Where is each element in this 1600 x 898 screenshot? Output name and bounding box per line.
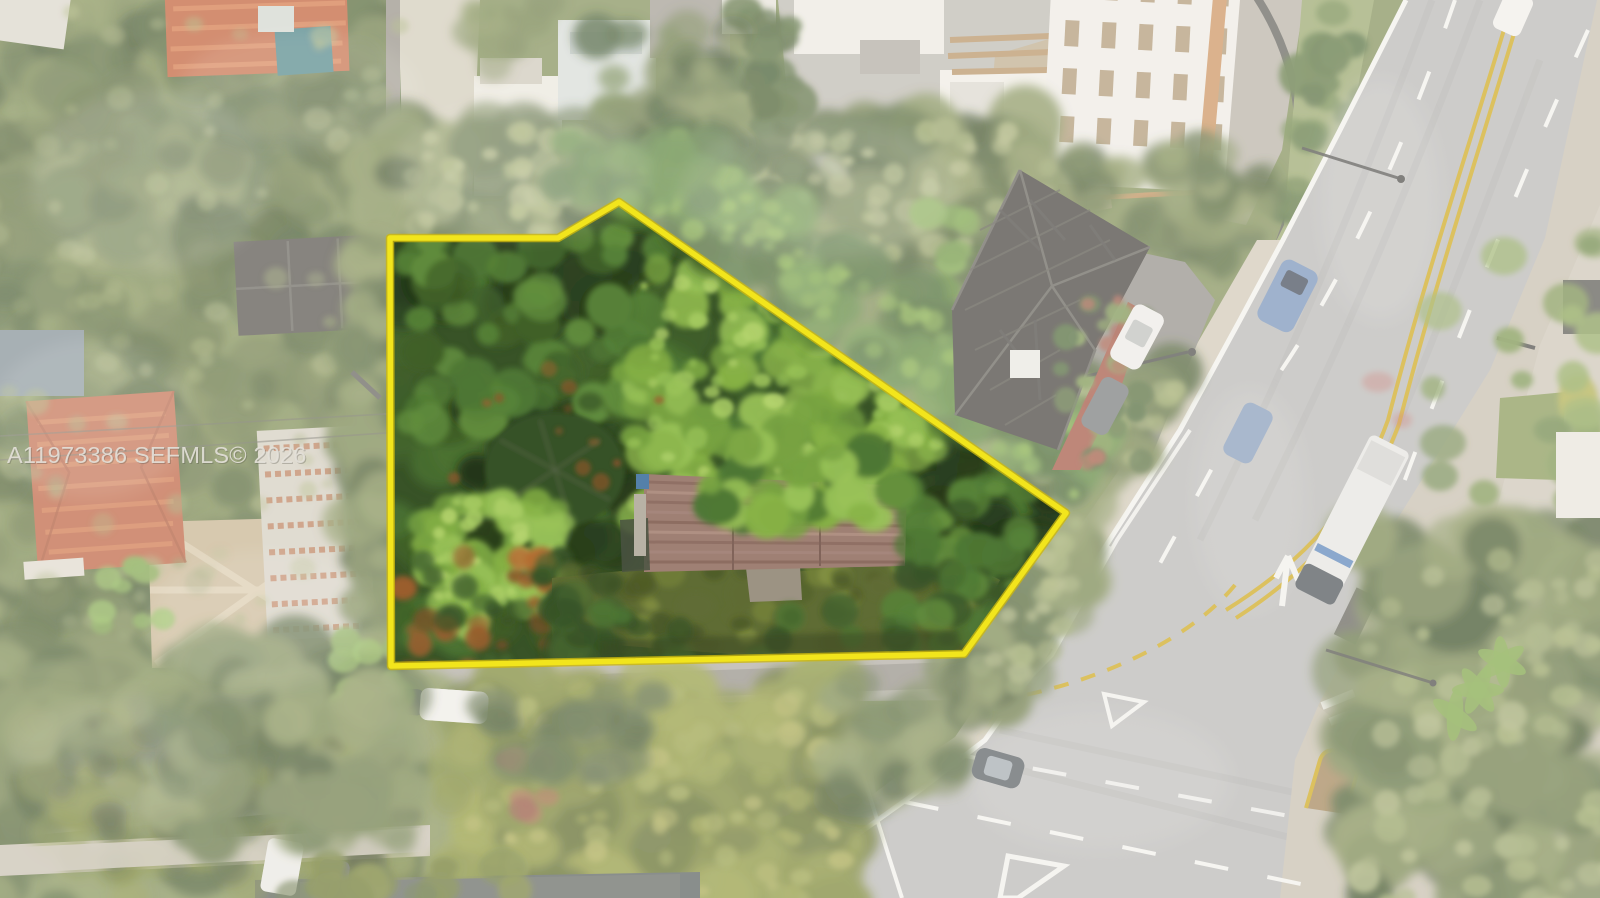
svg-text:A11973386 SEFMLS© 2026: A11973386 SEFMLS© 2026 <box>7 442 307 468</box>
